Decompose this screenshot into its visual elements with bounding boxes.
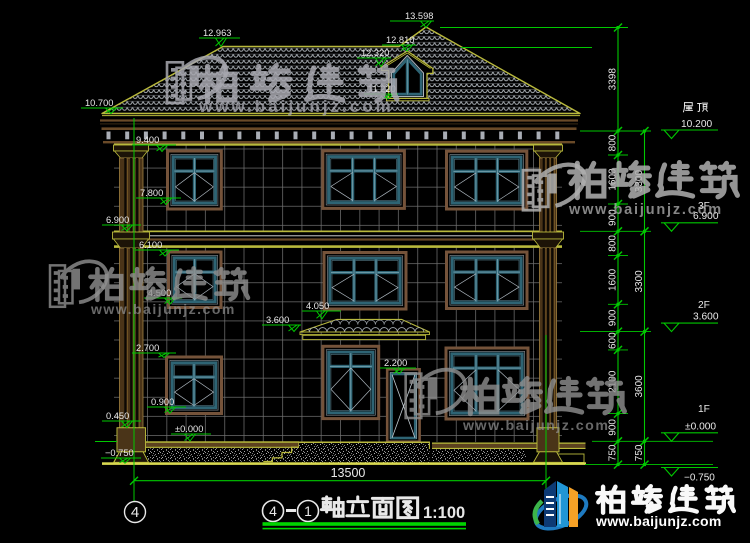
svg-text:10.700: 10.700 [85,98,113,108]
svg-text:www.baijunjz.com: www.baijunjz.com [198,97,394,116]
svg-text:0.900: 0.900 [151,397,174,407]
svg-text:3300: 3300 [634,270,645,293]
svg-text:900: 900 [608,309,619,326]
svg-text:6.900: 6.900 [106,215,129,225]
svg-text:800: 800 [608,134,619,151]
svg-text:12.963: 12.963 [203,28,231,38]
svg-text:1F: 1F [698,404,710,415]
svg-text:±0.000: ±0.000 [175,424,203,434]
svg-text:4: 4 [131,504,139,521]
svg-text:600: 600 [608,332,619,349]
svg-text:3398: 3398 [608,68,619,91]
svg-text:1:100: 1:100 [423,504,465,522]
svg-text:750: 750 [608,444,619,461]
svg-text:2.700: 2.700 [136,343,159,353]
svg-text:±0.000: ±0.000 [685,422,716,433]
svg-text:800: 800 [608,235,619,252]
svg-text:7.800: 7.800 [140,188,163,198]
svg-text:www.baijunjz.com: www.baijunjz.com [462,418,609,434]
svg-text:6.100: 6.100 [139,240,162,250]
svg-text:www.baijunjz.com: www.baijunjz.com [90,301,236,317]
svg-text:9.400: 9.400 [136,135,159,145]
svg-text:12.810: 12.810 [386,35,414,45]
svg-text:3.600: 3.600 [693,312,719,323]
svg-text:−0.750: −0.750 [105,448,134,458]
svg-text:12.320: 12.320 [361,48,389,58]
svg-text:13.598: 13.598 [405,11,433,21]
svg-text:2F: 2F [698,300,710,311]
svg-text:www.baijunjz.com: www.baijunjz.com [568,202,723,218]
svg-text:10.200: 10.200 [681,119,712,130]
svg-text:4.050: 4.050 [306,301,329,311]
svg-text:www.baijunjz.com: www.baijunjz.com [595,513,722,529]
svg-text:1: 1 [304,503,312,519]
svg-text:3.600: 3.600 [266,315,289,325]
svg-text:3600: 3600 [634,375,645,398]
svg-text:1600: 1600 [608,268,619,291]
svg-text:4: 4 [269,503,277,519]
svg-text:750: 750 [634,444,645,461]
svg-text:−0.750: −0.750 [684,473,715,484]
svg-text:2.200: 2.200 [384,358,407,368]
svg-text:13500: 13500 [331,466,366,480]
svg-text:0.450: 0.450 [106,411,129,421]
